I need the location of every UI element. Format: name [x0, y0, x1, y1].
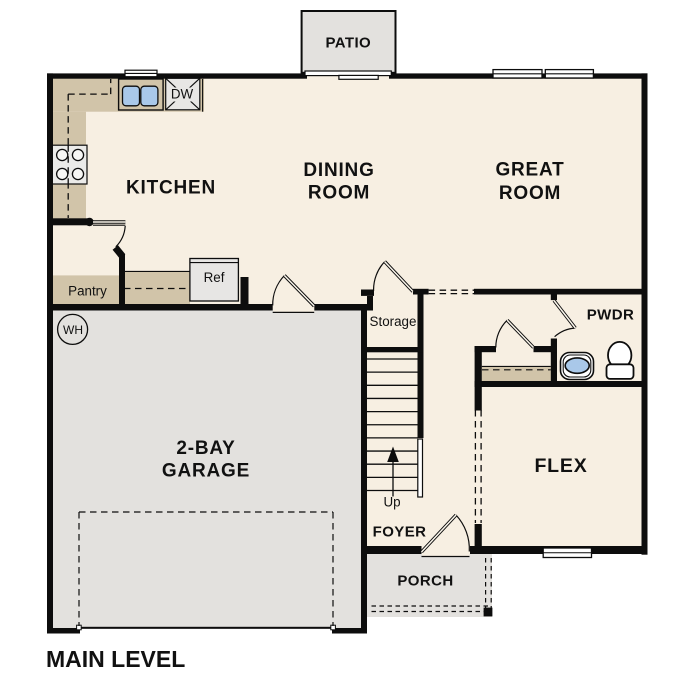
svg-text:Ref: Ref	[204, 270, 225, 285]
svg-text:PWDR: PWDR	[587, 306, 634, 323]
svg-text:Storage: Storage	[370, 314, 417, 329]
svg-text:GARAGE: GARAGE	[162, 461, 250, 482]
svg-text:2-BAY: 2-BAY	[176, 438, 235, 459]
svg-text:KITCHEN: KITCHEN	[126, 178, 216, 199]
svg-text:FOYER: FOYER	[373, 523, 427, 540]
svg-text:MAIN LEVEL: MAIN LEVEL	[46, 646, 185, 672]
svg-text:FLEX: FLEX	[534, 455, 587, 477]
svg-text:Pantry: Pantry	[68, 284, 107, 299]
svg-text:GREAT: GREAT	[495, 160, 564, 181]
svg-text:DINING: DINING	[303, 160, 374, 181]
svg-text:Up: Up	[383, 495, 400, 510]
svg-text:WH: WH	[63, 323, 83, 337]
svg-text:PORCH: PORCH	[397, 572, 453, 589]
svg-text:PATIO: PATIO	[325, 35, 371, 52]
svg-text:ROOM: ROOM	[308, 183, 370, 204]
svg-text:DW: DW	[171, 87, 194, 102]
svg-text:ROOM: ROOM	[499, 183, 561, 204]
